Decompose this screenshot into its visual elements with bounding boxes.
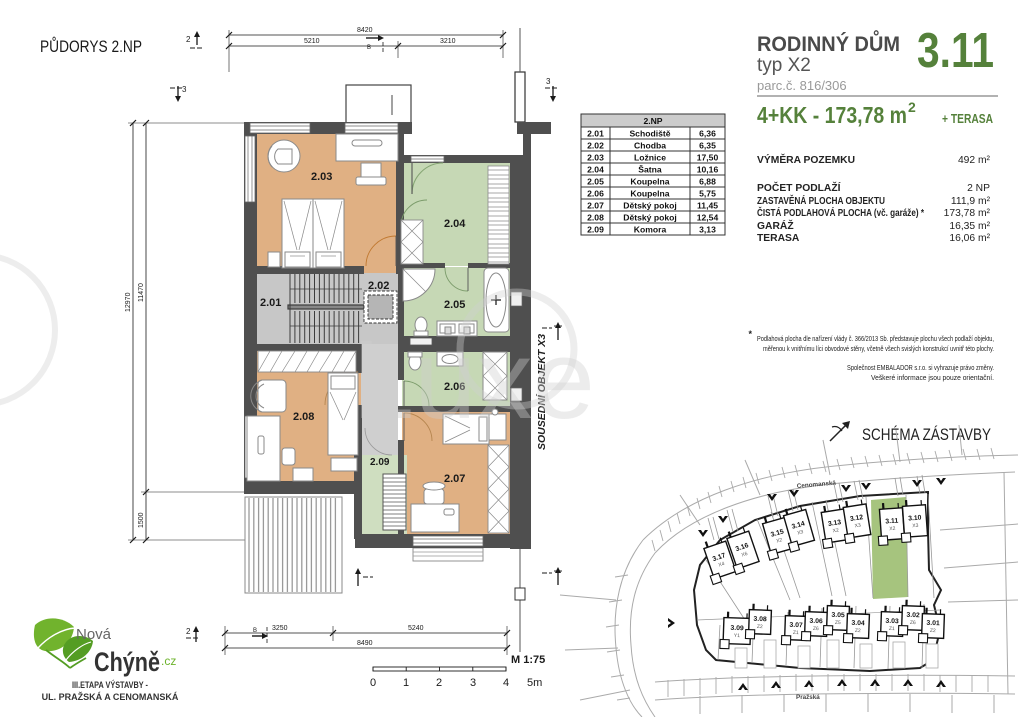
svg-text:M 1:75: M 1:75 (511, 654, 545, 666)
svg-text:2.04: 2.04 (587, 164, 604, 174)
svg-text:4: 4 (503, 677, 509, 689)
svg-text:6,36: 6,36 (699, 128, 716, 138)
svg-text:X2: X2 (889, 526, 896, 532)
svg-text:Y1: Y1 (734, 633, 741, 639)
svg-text:2.03: 2.03 (587, 152, 604, 162)
svg-text:Z1: Z1 (889, 626, 895, 632)
svg-text:typ X2: typ X2 (757, 55, 811, 76)
svg-text:Ložnice: Ložnice (634, 152, 666, 162)
svg-text:2.06: 2.06 (587, 188, 604, 198)
svg-text:2: 2 (186, 627, 191, 636)
svg-text:111,9 m²: 111,9 m² (951, 196, 991, 207)
svg-text:16,06 m²: 16,06 m² (949, 233, 990, 244)
svg-text:3.05: 3.05 (831, 612, 845, 619)
svg-text:5210: 5210 (304, 38, 320, 45)
svg-text:2.03: 2.03 (311, 171, 332, 183)
svg-text:2.05: 2.05 (444, 299, 465, 311)
svg-text:+ TERASA: + TERASA (942, 112, 993, 126)
svg-text:2.02: 2.02 (587, 140, 604, 150)
svg-text:Podlahová plocha dle nařízení: Podlahová plocha dle nařízení vlády č. 3… (757, 336, 994, 343)
svg-text:3.11: 3.11 (917, 24, 994, 78)
svg-text:3.09: 3.09 (730, 625, 744, 632)
svg-text:17,50: 17,50 (697, 152, 719, 162)
svg-text:Schodiště: Schodiště (629, 128, 670, 138)
svg-text:6,35: 6,35 (699, 140, 716, 150)
svg-text:3.04: 3.04 (851, 620, 865, 627)
svg-text:X2: X2 (832, 527, 839, 534)
svg-text:3.03: 3.03 (885, 618, 899, 625)
svg-text:2 NP: 2 NP (967, 183, 990, 194)
svg-text:4+KK - 173,78 m: 4+KK - 173,78 m (757, 102, 907, 128)
svg-text:Z1: Z1 (793, 630, 799, 636)
svg-text:2.08: 2.08 (293, 411, 314, 423)
svg-text:173,78 m²: 173,78 m² (944, 208, 991, 219)
svg-text:2.08: 2.08 (587, 212, 604, 222)
svg-text:RODINNÝ DŮM: RODINNÝ DŮM (757, 30, 900, 56)
svg-text:3.01: 3.01 (926, 620, 940, 627)
svg-text:492 m²: 492 m² (958, 155, 991, 166)
svg-text:Z6: Z6 (910, 620, 916, 626)
svg-text:SCHÉMA ZÁSTAVBY: SCHÉMA ZÁSTAVBY (862, 425, 991, 444)
svg-text:2.04: 2.04 (444, 218, 466, 230)
svg-text:3.10: 3.10 (908, 515, 922, 523)
svg-text:2.01: 2.01 (587, 128, 604, 138)
svg-text:Komora: Komora (634, 224, 667, 234)
svg-text:2: 2 (908, 99, 916, 115)
svg-text:5m: 5m (527, 677, 542, 689)
svg-text:Z6: Z6 (813, 626, 819, 632)
svg-text:2.07: 2.07 (444, 473, 465, 485)
svg-text:2.07: 2.07 (587, 200, 604, 210)
svg-text:Koupelna: Koupelna (630, 188, 669, 198)
svg-text:6,88: 6,88 (699, 176, 716, 186)
svg-text:ZASTAVĚNÁ PLOCHA OBJEKTU: ZASTAVĚNÁ PLOCHA OBJEKTU (757, 194, 885, 207)
svg-text:3250: 3250 (272, 625, 288, 632)
svg-text:12970: 12970 (125, 292, 132, 312)
svg-text:8420: 8420 (357, 27, 373, 34)
svg-text:PŮDORYS 2.NP: PŮDORYS 2.NP (40, 37, 142, 56)
svg-text:12,54: 12,54 (697, 212, 719, 222)
svg-text:Nová: Nová (76, 626, 112, 643)
svg-text:ČISTÁ PODLAHOVÁ PLOCHA (vč. ga: ČISTÁ PODLAHOVÁ PLOCHA (vč. garáže) * (757, 206, 924, 219)
svg-text:.cz: .cz (161, 654, 176, 668)
svg-text:11470: 11470 (138, 283, 145, 302)
svg-text:3.08: 3.08 (753, 616, 767, 623)
svg-text:2.09: 2.09 (587, 224, 604, 234)
svg-text:*: * (748, 329, 752, 339)
svg-text:5,75: 5,75 (699, 188, 716, 198)
svg-text:2: 2 (436, 677, 442, 689)
svg-text:1500: 1500 (138, 512, 145, 528)
svg-text:8490: 8490 (357, 640, 373, 647)
svg-text:3.07: 3.07 (789, 622, 803, 629)
svg-text:16,35 m²: 16,35 m² (949, 221, 990, 232)
svg-text:B: B (367, 45, 371, 51)
svg-text:Koupelna: Koupelna (630, 176, 669, 186)
svg-text:3: 3 (546, 77, 551, 86)
svg-text:Z2: Z2 (757, 624, 763, 630)
svg-text:1: 1 (403, 677, 409, 689)
svg-text:3210: 3210 (440, 38, 456, 45)
svg-text:2.NP: 2.NP (643, 116, 662, 126)
svg-text:Z2: Z2 (930, 628, 936, 634)
svg-text:3,13: 3,13 (699, 224, 716, 234)
svg-text:Dětský pokoj: Dětský pokoj (623, 212, 677, 222)
svg-text:0: 0 (370, 677, 376, 689)
svg-text:VÝMĚRA POZEMKU: VÝMĚRA POZEMKU (757, 153, 855, 166)
svg-text:3: 3 (470, 677, 476, 689)
svg-text:UL. PRAŽSKÁ A CENOMANSKÁ: UL. PRAŽSKÁ A CENOMANSKÁ (42, 691, 179, 702)
svg-text:2: 2 (186, 35, 191, 44)
svg-text:B: B (253, 628, 257, 634)
svg-text:Chodba: Chodba (634, 140, 666, 150)
svg-text:Veškeré informace jsou pouze o: Veškeré informace jsou pouze orientační. (871, 375, 994, 382)
svg-text:POČET PODLAŽÍ: POČET PODLAŽÍ (757, 181, 842, 194)
svg-text:2.01: 2.01 (260, 297, 281, 309)
svg-text:10,16: 10,16 (697, 164, 719, 174)
svg-text:3.11: 3.11 (885, 518, 899, 526)
svg-text:Z2: Z2 (855, 628, 861, 634)
svg-text:2.05: 2.05 (587, 176, 604, 186)
svg-text:Šatna: Šatna (638, 163, 662, 174)
svg-text:X3: X3 (854, 522, 861, 529)
svg-text:3: 3 (182, 85, 187, 94)
svg-text:Pražská: Pražská (796, 694, 820, 701)
svg-text:Společnost EMBALADOR s.r.o. si: Společnost EMBALADOR s.r.o. si vyhrazuje… (847, 365, 994, 372)
svg-text:GARÁŽ: GARÁŽ (757, 219, 794, 232)
svg-text:5240: 5240 (408, 625, 424, 632)
svg-text:Luxe: Luxe (352, 317, 595, 442)
svg-text:měřenou k vnitřnímu líci obvod: měřenou k vnitřnímu líci obvodové stěny,… (763, 346, 994, 353)
svg-text:III.ETAPA VÝSTAVBY -: III.ETAPA VÝSTAVBY - (72, 679, 148, 690)
svg-text:3.06: 3.06 (809, 618, 823, 625)
svg-text:Z5: Z5 (835, 620, 841, 626)
svg-text:3.02: 3.02 (906, 612, 920, 619)
svg-text:TERASA: TERASA (757, 233, 800, 244)
svg-text:2.02: 2.02 (368, 280, 389, 292)
svg-text:Chýně: Chýně (94, 647, 160, 677)
svg-text:Dětský pokoj: Dětský pokoj (623, 200, 677, 210)
svg-text:2.09: 2.09 (370, 457, 390, 468)
svg-text:11,45: 11,45 (697, 200, 718, 210)
svg-text:X3: X3 (912, 523, 919, 529)
svg-text:parc.č. 816/306: parc.č. 816/306 (757, 78, 847, 93)
